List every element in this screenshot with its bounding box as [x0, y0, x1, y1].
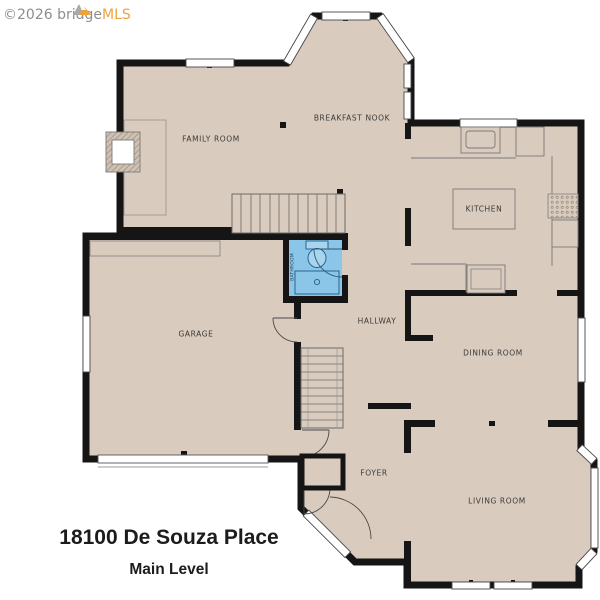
staircase-lower [301, 348, 343, 428]
kitchen-sink-icon [461, 127, 500, 153]
window-family-top [186, 59, 234, 67]
room-label-garage: GARAGE [179, 330, 214, 339]
room-label-kitchen: KITCHEN [466, 205, 503, 214]
foyer-closet [302, 456, 343, 488]
stove-icon [548, 194, 578, 218]
window-nook-top [322, 12, 370, 20]
fridge-icon [552, 220, 578, 247]
room-label-dining-room: DINING ROOM [463, 349, 523, 358]
room-label-breakfast-nook: BREAKFAST NOOK [314, 114, 390, 123]
sink-vanity-icon [295, 271, 339, 294]
window-dining-right [578, 318, 585, 382]
window-kitchen-top [460, 119, 517, 127]
garage-door [98, 455, 268, 467]
window-nook-right-2 [404, 92, 411, 119]
toilet-icon [306, 241, 328, 268]
window-bay-center [591, 468, 598, 548]
window-nook-right-1 [404, 64, 411, 88]
range-icon [467, 265, 505, 293]
room-label-bathroom: BATHROOM [291, 253, 296, 281]
room-label-hallway: HALLWAY [358, 317, 397, 326]
window-garage-left [83, 316, 90, 372]
floorplan-drawing [0, 0, 600, 600]
room-label-foyer: FOYER [360, 469, 387, 478]
level-subtitle: Main Level [129, 561, 208, 579]
room-label-family-room: FAMILY ROOM [182, 135, 240, 144]
window-living-bottom-2 [494, 582, 532, 589]
address-title: 18100 De Souza Place [59, 526, 278, 550]
window-living-bottom-1 [452, 582, 490, 589]
staircase-upper [232, 194, 345, 233]
counter-corner [516, 127, 544, 156]
bathroom-room [289, 240, 342, 296]
floorplan-page: ©2026 bridgeMLS [0, 0, 600, 600]
room-label-living-room: LIVING ROOM [468, 497, 526, 506]
